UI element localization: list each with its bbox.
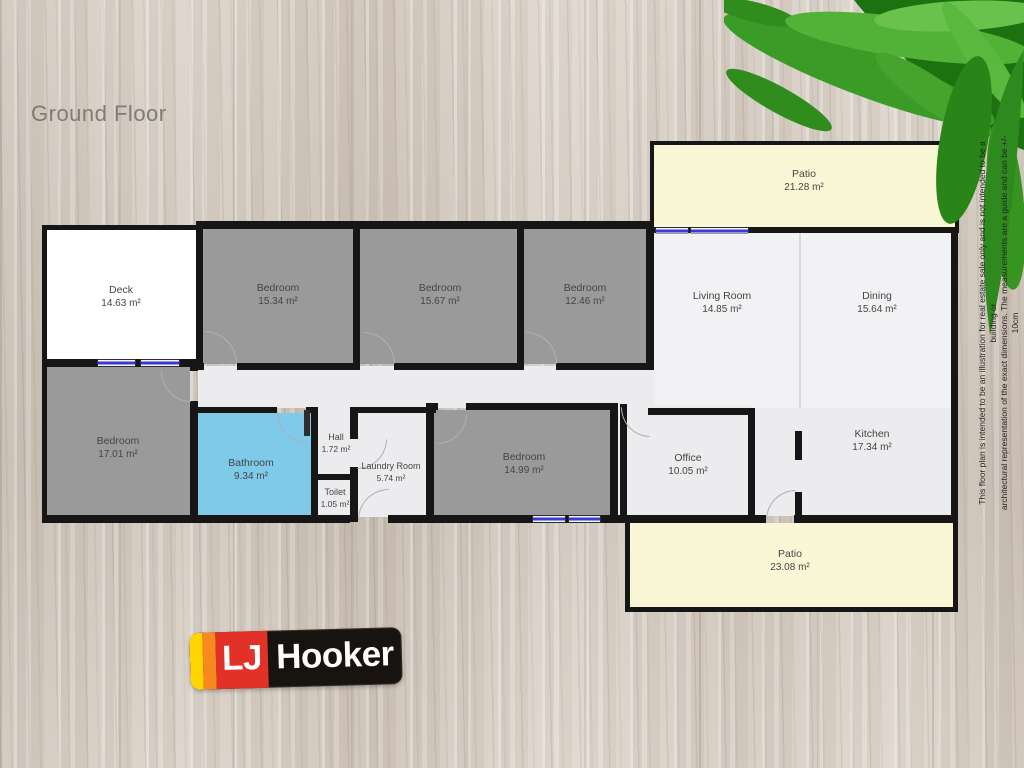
wall-segment — [794, 515, 958, 523]
wall-segment — [795, 431, 802, 460]
room-label-bedroom3: Bedroom12.46 m² — [525, 281, 645, 309]
wall-segment — [42, 225, 200, 230]
wall-segment — [466, 403, 618, 410]
window-marker — [141, 360, 179, 366]
disclaimer-line2: architectural representation of the exac… — [999, 128, 1021, 518]
logo-lj-panel: LJ — [215, 631, 269, 689]
room-label-bedroom4: Bedroom17.01 m² — [58, 434, 178, 462]
wall-segment — [618, 515, 766, 523]
window-marker — [656, 228, 688, 233]
wall-segment — [42, 225, 47, 365]
room-label-laundry: Laundry Room5.74 m² — [346, 461, 436, 484]
wall-segment — [556, 363, 654, 370]
window-marker — [98, 360, 135, 366]
wall-segment — [196, 221, 203, 370]
room-label-kitchen: Kitchen17.34 m² — [812, 427, 932, 455]
wall-segment — [353, 221, 360, 370]
wall-segment — [625, 607, 958, 612]
wall-segment — [394, 363, 524, 370]
room-label-bedroom2: Bedroom15.67 m² — [380, 281, 500, 309]
room-label-patio-bottom: Patio23.08 m² — [730, 547, 850, 575]
wall-segment — [237, 363, 360, 370]
lj-hooker-logo: LJ Hooker — [189, 627, 403, 690]
corridor-fill — [198, 366, 654, 408]
wall-segment — [648, 408, 755, 415]
wall-segment — [517, 221, 524, 370]
room-label-hall: Hall1.72 m² — [301, 432, 371, 455]
wall-segment — [650, 141, 654, 231]
disclaimer-text: This floor plan is intended to be an ill… — [977, 128, 999, 518]
logo-lj-text: LJ — [221, 637, 262, 682]
window-marker — [569, 516, 600, 522]
logo-name-panel: Hooker — [267, 627, 403, 688]
window-marker — [533, 516, 565, 522]
room-label-office: Office10.05 m² — [628, 451, 748, 479]
wall-segment — [388, 515, 426, 523]
wall-segment — [196, 221, 654, 229]
room-label-bedroom1: Bedroom15.34 m² — [218, 281, 338, 309]
disclaimer-line1: This floor plan is intended to be an ill… — [977, 128, 999, 518]
ground-floor-label: Ground Floor — [31, 101, 167, 127]
room-label-bathroom: Bathroom9.34 m² — [191, 456, 311, 484]
logo-name-text: Hooker — [276, 634, 395, 681]
wall-segment — [748, 408, 755, 518]
wall-segment — [350, 407, 436, 413]
wall-segment — [610, 403, 618, 522]
wall-segment — [42, 515, 350, 523]
wall-segment — [646, 221, 654, 370]
wall-segment — [190, 359, 198, 371]
wall-segment — [953, 519, 958, 612]
room-label-toilet: Toilet1.05 m² — [305, 487, 365, 510]
room-label-deck: Deck14.63 m² — [61, 283, 181, 311]
room-label-bedroom5: Bedroom14.99 m² — [464, 450, 584, 478]
wall-segment — [42, 359, 47, 522]
wall-segment — [426, 403, 438, 410]
wall-segment — [625, 519, 630, 611]
wall-segment — [196, 407, 277, 413]
